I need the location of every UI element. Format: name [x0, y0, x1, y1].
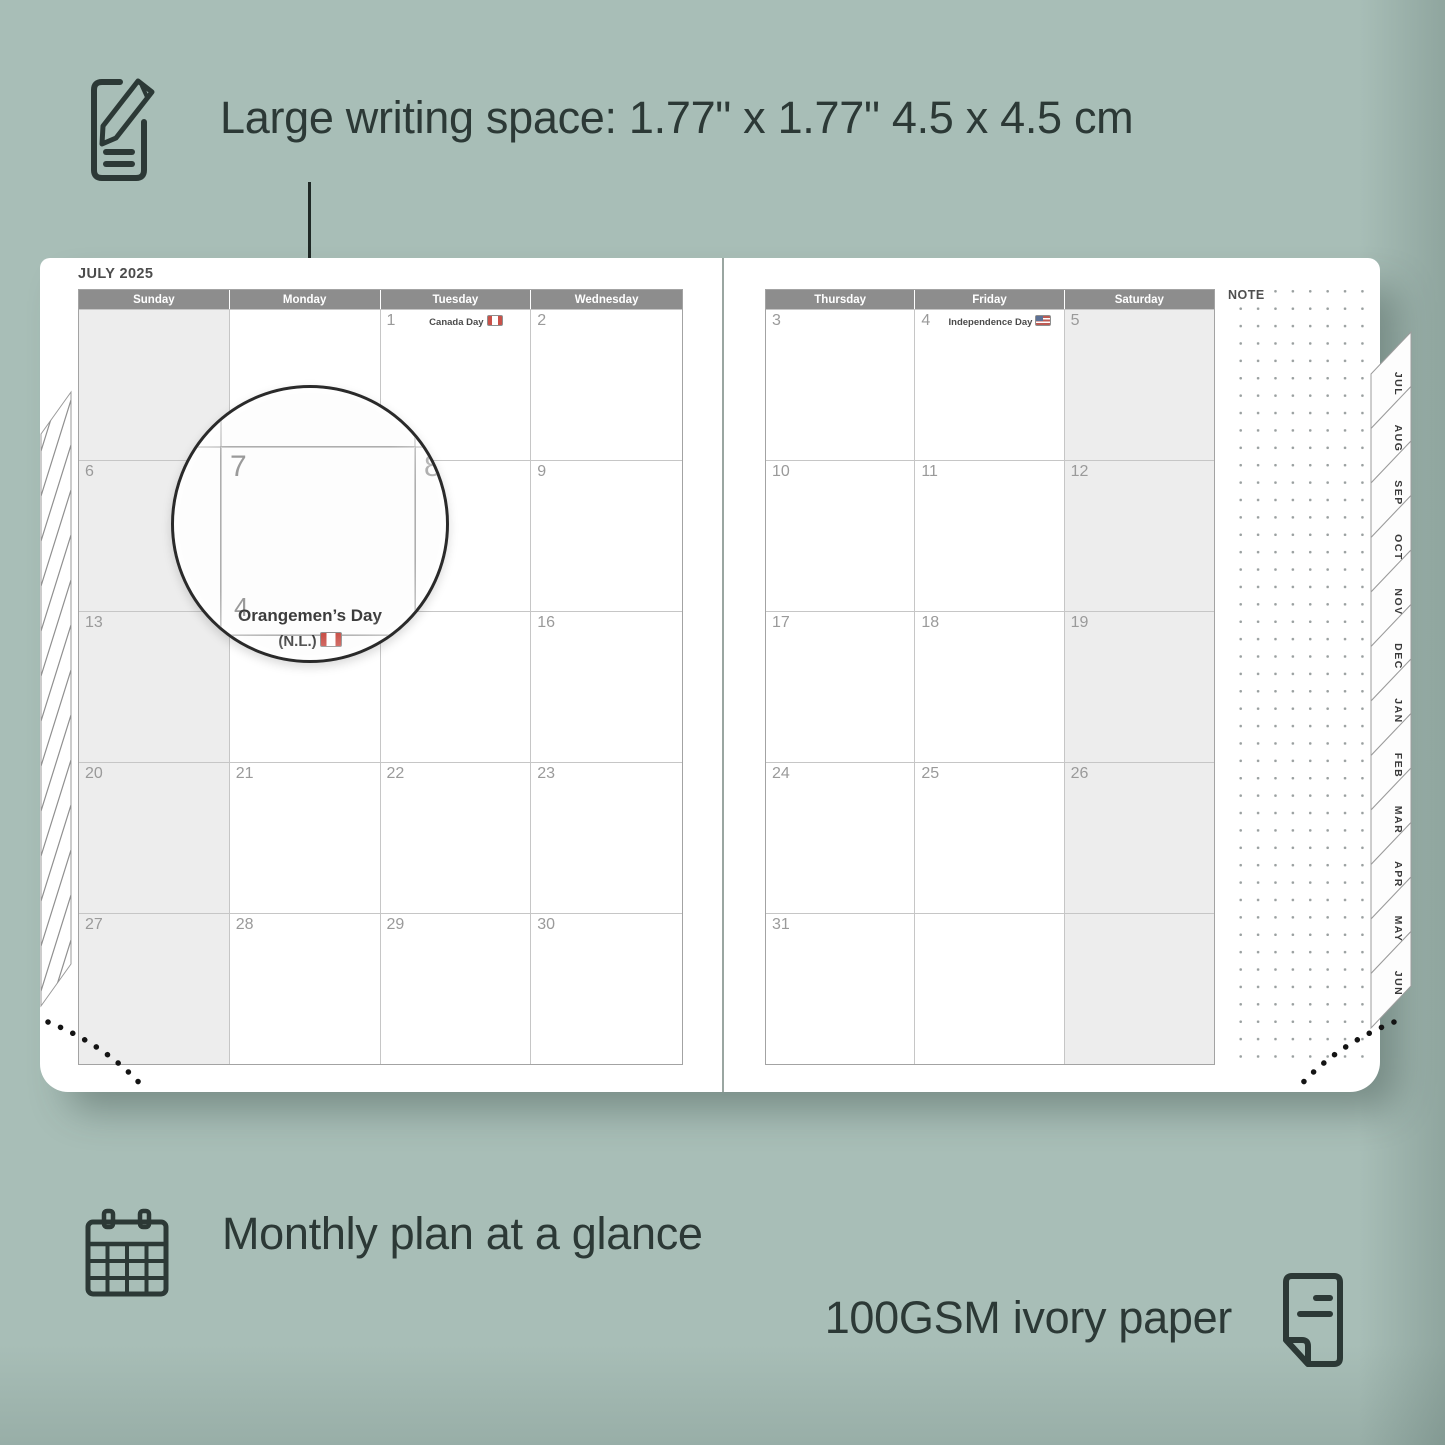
date-number: 5: [1071, 312, 1080, 330]
calendar-cell-26: 26: [1065, 762, 1214, 913]
paper-sheet-icon: [1272, 1270, 1356, 1372]
date-number: 6: [85, 463, 94, 481]
date-number: 19: [1071, 614, 1089, 632]
day-header-wednesday: Wednesday: [531, 290, 682, 309]
date-number: 31: [772, 916, 790, 934]
date-number: 29: [387, 916, 405, 934]
month-tab-label: DEC: [1392, 643, 1404, 670]
month-tab-label: JAN: [1392, 698, 1404, 724]
date-number: 30: [537, 916, 555, 934]
date-number: 4: [921, 312, 930, 330]
month-tab-label: MAR: [1392, 806, 1404, 834]
date-number: 10: [772, 463, 790, 481]
paper-callout: 100GSM ivory paper: [825, 1292, 1232, 1344]
calendar-cell-25: 25: [915, 762, 1064, 913]
date-number: 9: [537, 463, 546, 481]
calendar-cell-22: 22: [381, 762, 532, 913]
calendar-cell-28: 28: [230, 913, 381, 1064]
note-label: NOTE: [1228, 288, 1270, 304]
month-index-tabs: JULAUGSEPOCTNOVDECJANFEBMARAPRMAYJUN: [1369, 326, 1413, 1038]
calendar-cell-30: 30: [531, 913, 682, 1064]
calendar-cell-2: 2: [531, 309, 682, 460]
canada-flag-icon: [487, 315, 503, 326]
calendar-cell-5: 5: [1065, 309, 1214, 460]
month-title: JULY 2025: [78, 266, 153, 282]
calendar-cell-23: 23: [531, 762, 682, 913]
month-tab-label: NOV: [1392, 588, 1404, 615]
date-number: 3: [772, 312, 781, 330]
calendar-cell-16: 16: [531, 611, 682, 762]
day-header-sunday: Sunday: [79, 290, 230, 309]
day-header-monday: Monday: [230, 290, 381, 309]
calendar-grid-right-page: ThursdayFridaySaturday34Independence Day…: [765, 289, 1215, 1065]
calendar-cell-3: 3: [766, 309, 915, 460]
spread-spine: [722, 258, 724, 1092]
date-number: 28: [236, 916, 254, 934]
date-number: 23: [537, 765, 555, 783]
date-number: 2: [537, 312, 546, 330]
date-number: 18: [921, 614, 939, 632]
month-tab-label: SEP: [1392, 480, 1404, 506]
day-header-friday: Friday: [915, 290, 1064, 309]
calendar-cell-21: 21: [230, 762, 381, 913]
month-tab-label: JUL: [1392, 372, 1404, 396]
calendar-cell-24: 24: [766, 762, 915, 913]
month-tab-label: APR: [1392, 861, 1404, 888]
calendar-cell-4: 4Independence Day: [915, 309, 1064, 460]
date-number: 16: [537, 614, 555, 632]
calendar-cell-10: 10: [766, 460, 915, 611]
calendar-cell-20: 20: [79, 762, 230, 913]
calendar-cell-18: 18: [915, 611, 1064, 762]
date-number: 13: [85, 614, 103, 632]
stitch-dots-bottom-left: [44, 1014, 156, 1092]
calendar-cell-12: 12: [1065, 460, 1214, 611]
stitch-dots-bottom-right: [1286, 1014, 1398, 1092]
day-header-thursday: Thursday: [766, 290, 915, 309]
date-number: 1: [387, 312, 396, 330]
month-tab-label: FEB: [1392, 753, 1404, 779]
page-edge-hatching: [40, 390, 72, 1008]
calendar-grid-icon: [84, 1208, 170, 1298]
date-number: 27: [85, 916, 103, 934]
date-number: 20: [85, 765, 103, 783]
magnified-holiday-label: Orangemen’s Day: [174, 606, 446, 626]
calendar-cell-17: 17: [766, 611, 915, 762]
magnifier-loupe: 7 8 4 Orangemen’s Day (N.L.): [171, 385, 449, 663]
month-tab-label: MAY: [1392, 916, 1404, 943]
holiday-label: Independence Day: [939, 315, 1060, 329]
date-number: 25: [921, 765, 939, 783]
month-tab-label: JUN: [1392, 971, 1404, 997]
date-number: 21: [236, 765, 254, 783]
day-header-tuesday: Tuesday: [381, 290, 532, 309]
day-header-saturday: Saturday: [1065, 290, 1214, 309]
us-flag-icon: [1035, 315, 1051, 326]
holiday-label: Canada Day: [405, 315, 528, 329]
date-number: 26: [1071, 765, 1089, 783]
pencil-note-icon: [86, 70, 168, 184]
date-number: 17: [772, 614, 790, 632]
note-dot-grid-panel: NOTE: [1226, 288, 1378, 1064]
date-number: 24: [772, 765, 790, 783]
date-number: 22: [387, 765, 405, 783]
magnified-holiday-label-line2: (N.L.): [174, 632, 446, 650]
date-number: 11: [921, 463, 938, 481]
canada-flag-icon: [320, 632, 342, 647]
calendar-cell-11: 11: [915, 460, 1064, 611]
writing-space-callout: Large writing space: 1.77" x 1.77" 4.5 x…: [220, 92, 1133, 144]
calendar-cell-19: 19: [1065, 611, 1214, 762]
calendar-cell: [915, 913, 1064, 1064]
calendar-cell-29: 29: [381, 913, 532, 1064]
month-tab-label: AUG: [1392, 425, 1404, 453]
monthly-plan-callout: Monthly plan at a glance: [222, 1208, 703, 1260]
calendar-cell-9: 9: [531, 460, 682, 611]
calendar-cell: [1065, 913, 1214, 1064]
magnified-date-8: 8: [424, 450, 441, 484]
magnified-date-7: 7: [230, 450, 247, 484]
date-number: 12: [1071, 463, 1089, 481]
month-tab-label: OCT: [1392, 534, 1404, 561]
calendar-cell-31: 31: [766, 913, 915, 1064]
